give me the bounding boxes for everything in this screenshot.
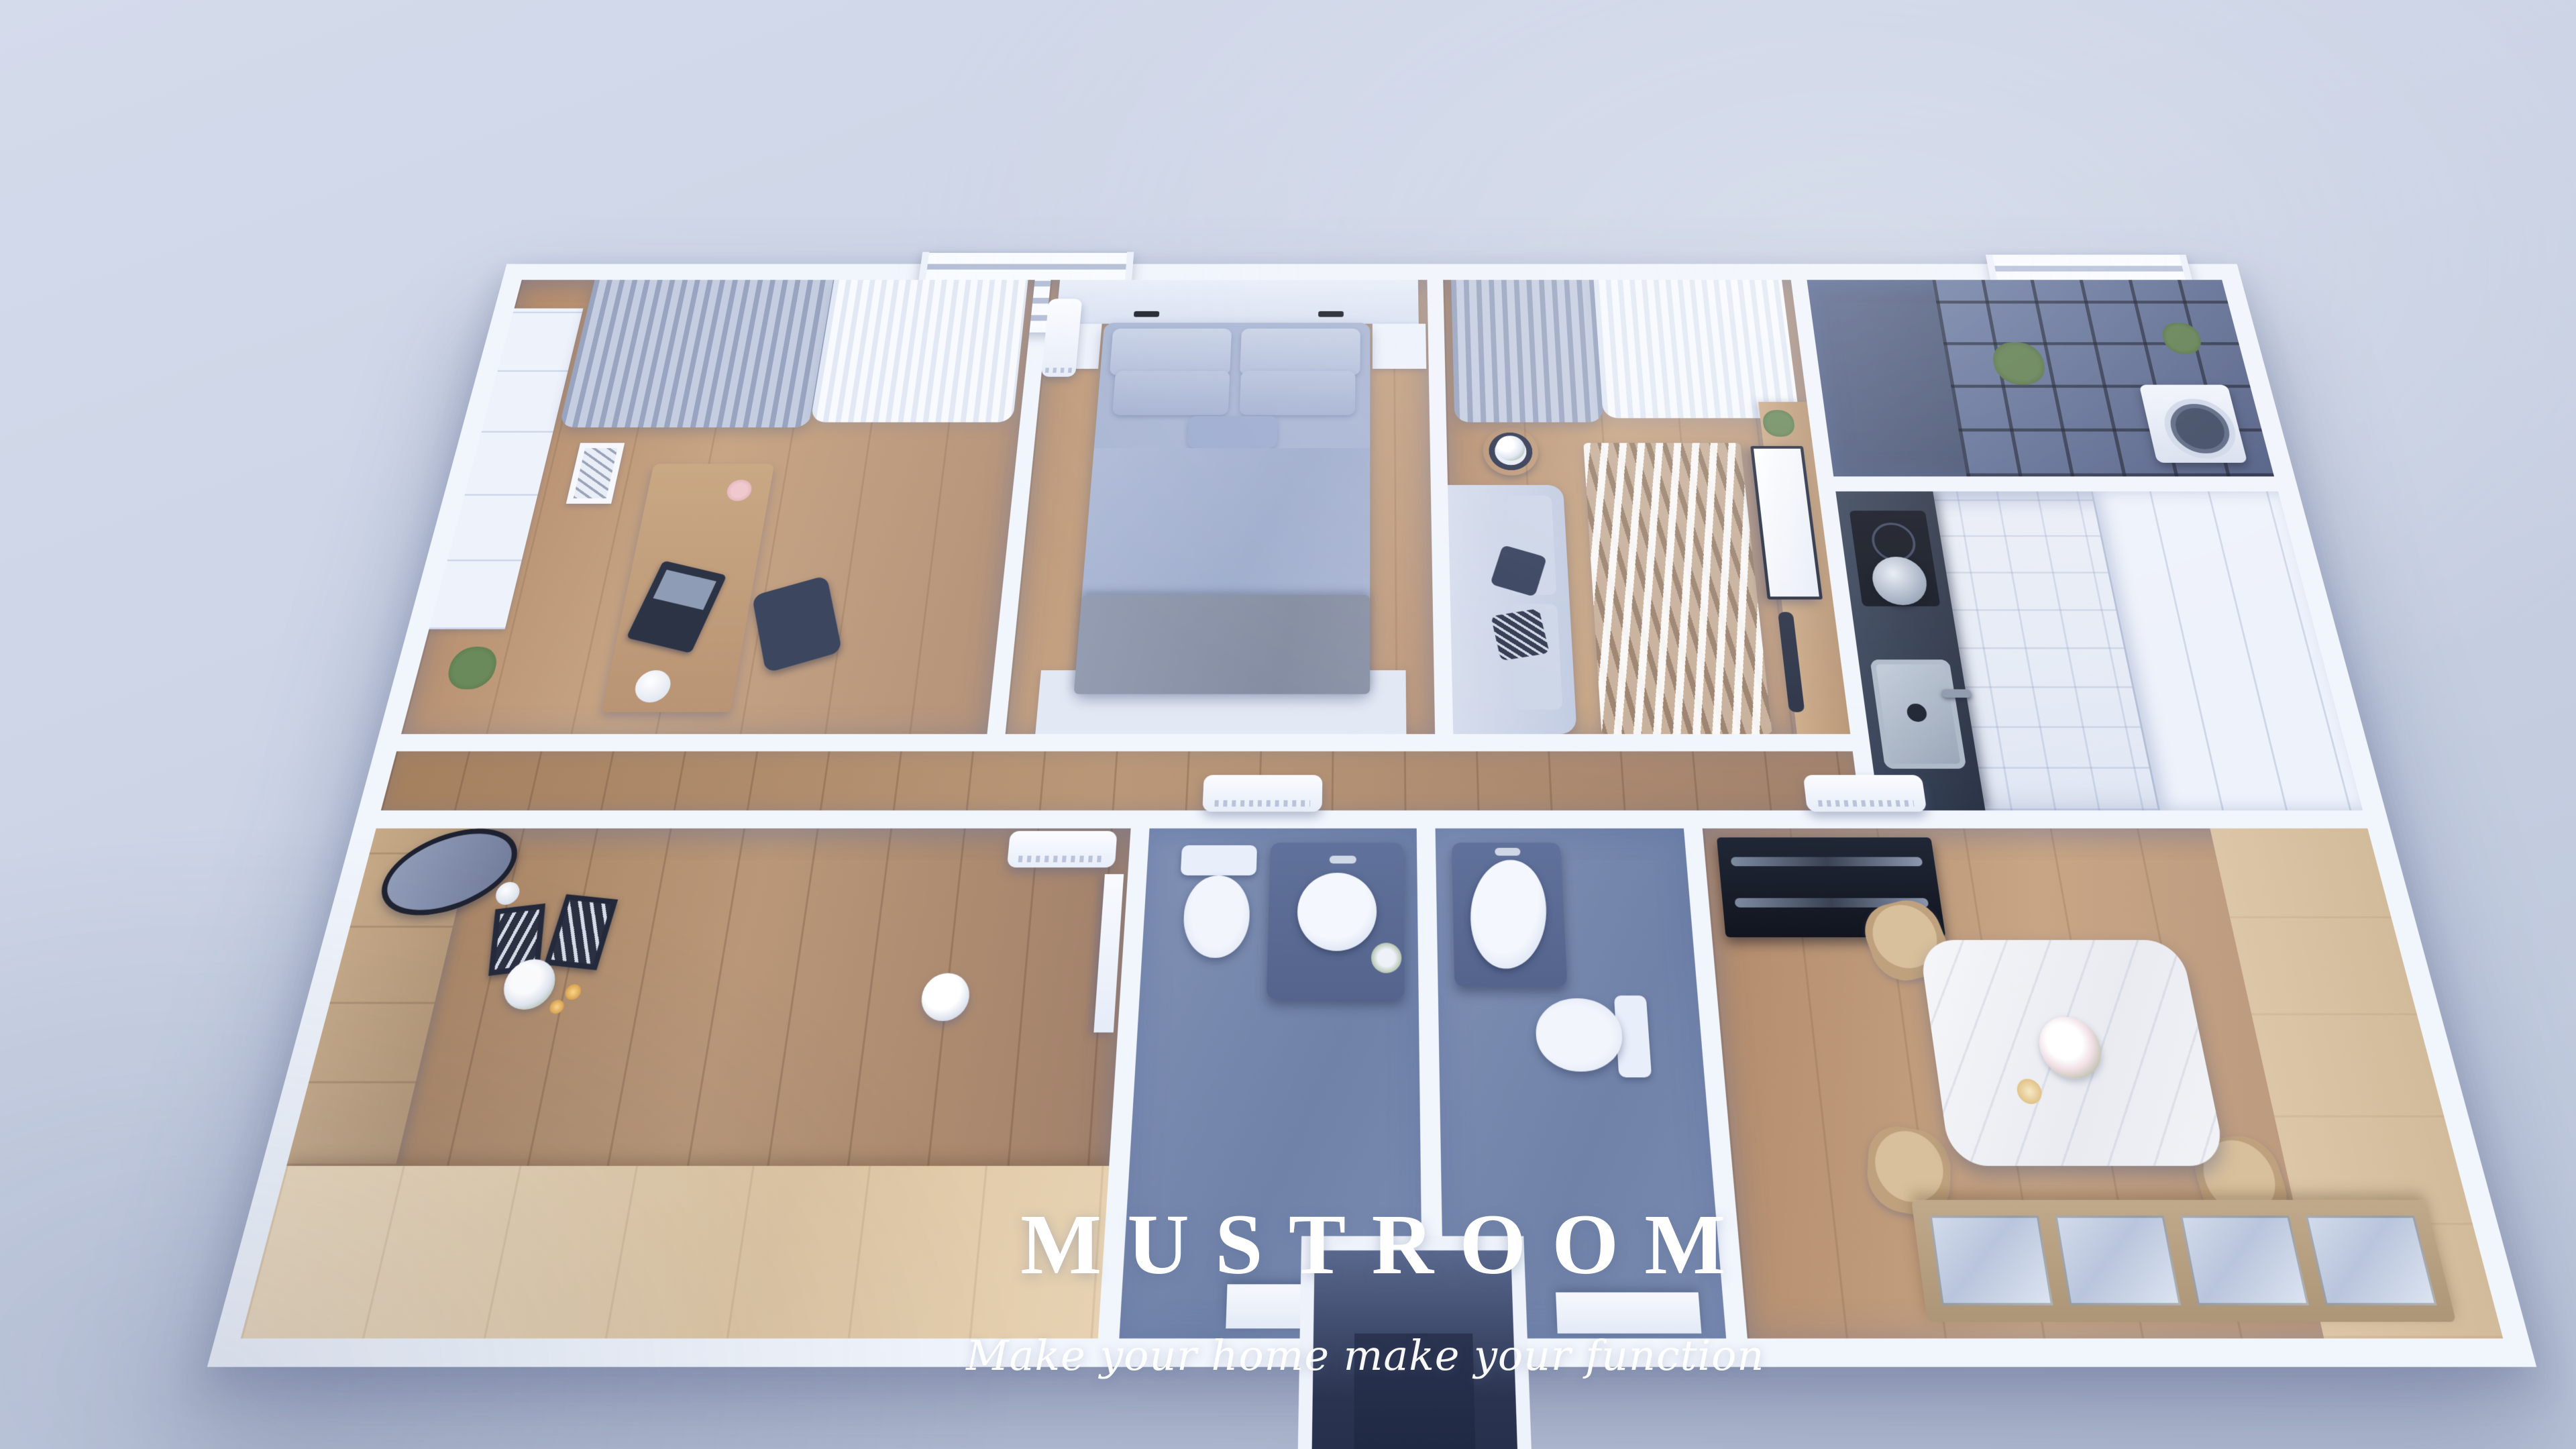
lumbar-pillow <box>1187 416 1278 448</box>
room-dining <box>1703 828 2503 1338</box>
ac-unit-icon <box>1803 775 1927 812</box>
wall-sconce-icon <box>1318 311 1344 317</box>
toilet-tank <box>1181 845 1257 875</box>
display-cabinet <box>1911 1200 2456 1322</box>
room-master-bedroom <box>1006 280 1436 734</box>
curtain-sheer <box>1594 280 1800 418</box>
brand-title: MUSTROOM <box>995 1195 1752 1294</box>
pillow <box>1112 371 1230 415</box>
tall-cabinets <box>2091 492 2363 811</box>
zebra-rug <box>1583 443 1772 734</box>
faucet <box>1330 856 1356 864</box>
art-frame <box>566 443 625 504</box>
flowers <box>1495 435 1525 460</box>
pattern-pillow <box>1491 608 1550 661</box>
dessert-plate <box>2015 1079 2043 1104</box>
island-counter <box>241 1166 1109 1338</box>
curtain-gray <box>559 280 834 427</box>
room-living <box>1443 280 1850 734</box>
flower-centerpiece <box>2035 1017 2106 1079</box>
ac-unit-icon <box>1041 299 1082 376</box>
round-side-table <box>1482 427 1539 476</box>
plant <box>444 647 501 689</box>
candle <box>564 984 583 1000</box>
sofa <box>1448 485 1577 734</box>
open-door <box>1093 874 1124 1032</box>
basin-stand <box>1452 843 1568 987</box>
desk-chair <box>752 575 843 673</box>
brand-tagline: Make your home make your function <box>966 1331 1764 1380</box>
art-frame <box>544 894 618 970</box>
curtain-sheer <box>810 280 1028 422</box>
round-stool <box>919 973 972 1021</box>
toilet-bowl <box>1182 875 1251 958</box>
marble-dining-table <box>1919 940 2227 1166</box>
plant-sprig <box>1371 943 1401 973</box>
ac-unit-icon <box>1202 775 1322 812</box>
toilet-bowl <box>1534 998 1624 1071</box>
oval-basin <box>1464 855 1551 974</box>
room-study <box>401 280 1035 734</box>
bathroom-door <box>1556 1292 1701 1333</box>
hallway <box>381 751 1860 810</box>
pillow <box>1240 329 1360 376</box>
pillow <box>1110 329 1232 376</box>
double-bed <box>1074 323 1371 694</box>
white-vase <box>494 882 522 905</box>
curtain-gray <box>1451 280 1603 422</box>
duvet <box>1081 448 1371 612</box>
round-basin <box>1297 873 1377 951</box>
vanity <box>1267 843 1405 1000</box>
room-kitchen <box>1835 492 2363 811</box>
nightstand <box>1373 324 1426 369</box>
gray-throw-blanket <box>1074 595 1371 694</box>
ac-unit-icon <box>1007 831 1118 867</box>
candle <box>548 1000 565 1014</box>
pillow <box>1239 371 1355 415</box>
faucet <box>1495 848 1520 856</box>
room-balcony-laundry <box>1807 280 2274 476</box>
render-canvas: MUSTROOM Make your home make your functi… <box>0 0 2576 1449</box>
wardrobe <box>429 309 583 629</box>
headboard-wall <box>1056 280 1419 323</box>
wall-sconce-icon <box>1134 311 1159 317</box>
faucet <box>1941 689 1972 698</box>
